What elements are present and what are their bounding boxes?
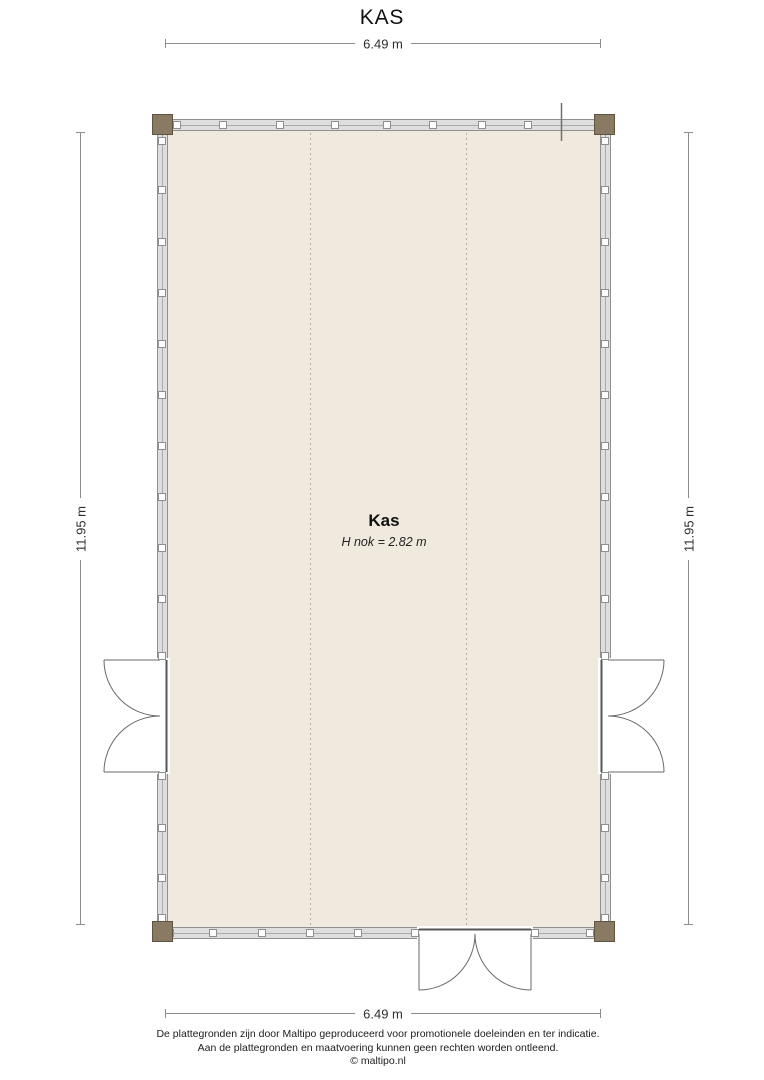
wall-mullion (158, 595, 166, 603)
dimension-label-right: 11.95 m (682, 497, 697, 559)
corner-post-bottom-left (152, 921, 173, 942)
dimension-line-right: 11.95 m (688, 132, 689, 925)
wall-mullion (601, 874, 609, 882)
wall-mullion (158, 289, 166, 297)
wall-mullion (601, 340, 609, 348)
wall-bottom (157, 927, 611, 939)
wall-mullion (601, 186, 609, 194)
disclaimer-line-2: Aan de plattegronden en maatvoering kunn… (0, 1042, 756, 1056)
wall-mullion (601, 442, 609, 450)
wall-mullion (276, 121, 284, 129)
wall-mullion (158, 493, 166, 501)
wall-mullion (601, 772, 609, 780)
room-name: Kas (168, 511, 600, 531)
wall-mullion (586, 929, 594, 937)
wall-mullion (601, 137, 609, 145)
wall-mullion (601, 289, 609, 297)
wall-mullion (601, 544, 609, 552)
page-title: KAS (0, 6, 764, 30)
wall-mullion (306, 929, 314, 937)
wall-mullion (354, 929, 362, 937)
wall-mullion (158, 824, 166, 832)
wall-mullion (158, 238, 166, 246)
corner-post-top-left (152, 114, 173, 135)
wall-mullion (158, 137, 166, 145)
disclaimer-line-1: De plattegronden zijn door Maltipo gepro… (0, 1028, 756, 1042)
wall-mullion (601, 493, 609, 501)
wall-mullion (158, 652, 166, 660)
wall-mullion (173, 121, 181, 129)
dimension-line-top: 6.49 m (165, 43, 601, 44)
wall-mullion (601, 652, 609, 660)
wall-mullion (258, 929, 266, 937)
corner-post-bottom-right (594, 921, 615, 942)
wall-mullion (158, 391, 166, 399)
wall-mullion (601, 824, 609, 832)
dimension-line-bottom: 6.49 m (165, 1013, 601, 1014)
dimension-label-top: 6.49 m (355, 37, 411, 52)
wall-mullion (601, 238, 609, 246)
wall-mullion (158, 186, 166, 194)
disclaimer-copyright: © maltipo.nl (0, 1055, 756, 1069)
room-label: Kas H nok = 2.82 m (168, 511, 600, 549)
wall-mullion (209, 929, 217, 937)
wall-mullion (331, 121, 339, 129)
wall-mullion (219, 121, 227, 129)
wall-mullion (158, 442, 166, 450)
wall-mullion (601, 595, 609, 603)
wall-mullion (411, 929, 419, 937)
corner-post-top-right (594, 114, 615, 135)
dimension-label-left: 11.95 m (74, 497, 89, 559)
wall-mullion (429, 121, 437, 129)
wall-mullion (383, 121, 391, 129)
dimension-line-left: 11.95 m (80, 132, 81, 925)
wall-mullion (601, 391, 609, 399)
dimension-label-bottom: 6.49 m (355, 1007, 411, 1022)
wall-mullion (158, 772, 166, 780)
wall-mullion (158, 874, 166, 882)
floorplan-page: KAS 6.49 m 11.95 m 11.95 m (0, 0, 764, 1080)
room-ridge-height: H nok = 2.82 m (168, 535, 600, 549)
wall-mullion (524, 121, 532, 129)
footer-disclaimer: De plattegronden zijn door Maltipo gepro… (0, 1028, 756, 1069)
wall-mullion (531, 929, 539, 937)
wall-mullion (478, 121, 486, 129)
wall-mullion (158, 340, 166, 348)
wall-mullion (158, 544, 166, 552)
